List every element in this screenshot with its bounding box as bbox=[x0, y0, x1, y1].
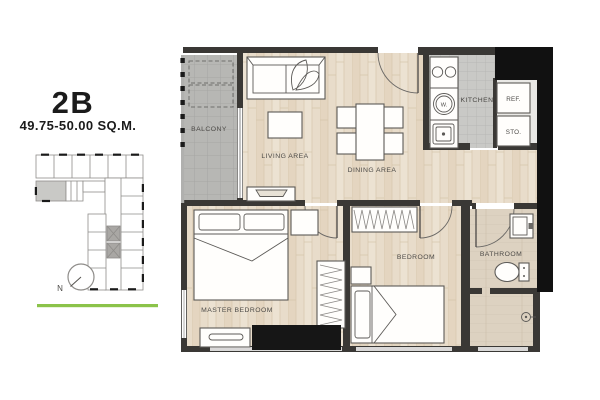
dining-table bbox=[356, 104, 384, 160]
bedroom-label: BEDROOM bbox=[397, 254, 435, 261]
sliding-glass-door bbox=[238, 108, 243, 198]
balcony-label: BALCONY bbox=[191, 126, 227, 133]
tv-console bbox=[247, 187, 295, 201]
floorplan-page: W. REF. STO. bbox=[0, 0, 600, 400]
unit-area-text: 49.75-50.00 SQ.M. bbox=[20, 118, 137, 133]
bedroom-wardrobe bbox=[352, 207, 417, 232]
master-wardrobe bbox=[317, 261, 345, 328]
built-in-closet bbox=[252, 325, 341, 350]
master-bench bbox=[200, 328, 250, 347]
master-bed bbox=[194, 210, 288, 300]
refrigerator-label: REF. bbox=[506, 96, 520, 103]
master-nightstand bbox=[291, 210, 318, 235]
kitchen-counter: W. bbox=[430, 57, 458, 148]
accent-green-bar bbox=[37, 304, 158, 307]
bathroom-label: BATHROOM bbox=[480, 251, 522, 258]
storage-label: STO. bbox=[506, 129, 521, 136]
floorplan-drawing: W. REF. STO. bbox=[0, 0, 600, 400]
single-bed bbox=[351, 286, 444, 343]
storage: STO. bbox=[497, 116, 530, 146]
bathroom-sink bbox=[510, 214, 533, 238]
master-bedroom-label: MASTER BEDROOM bbox=[201, 307, 273, 314]
sofa bbox=[247, 57, 325, 99]
bedroom-nightstand bbox=[351, 267, 371, 284]
north-label: N bbox=[57, 284, 63, 293]
kitchen-sink bbox=[433, 124, 454, 144]
refrigerator: REF. bbox=[497, 83, 530, 113]
toilet bbox=[495, 263, 529, 282]
kitchen-label: KITCHEN bbox=[461, 97, 494, 104]
coffee-table bbox=[268, 112, 302, 138]
living-area-label: LIVING AREA bbox=[261, 153, 308, 160]
washer-label: W. bbox=[441, 102, 448, 108]
dining-area-label: DINING AREA bbox=[348, 167, 397, 174]
balcony-railing bbox=[180, 55, 184, 203]
unit-name-title: 2B bbox=[52, 85, 95, 120]
key-plan-highlighted-unit bbox=[36, 181, 66, 201]
tv-icon bbox=[256, 190, 287, 197]
